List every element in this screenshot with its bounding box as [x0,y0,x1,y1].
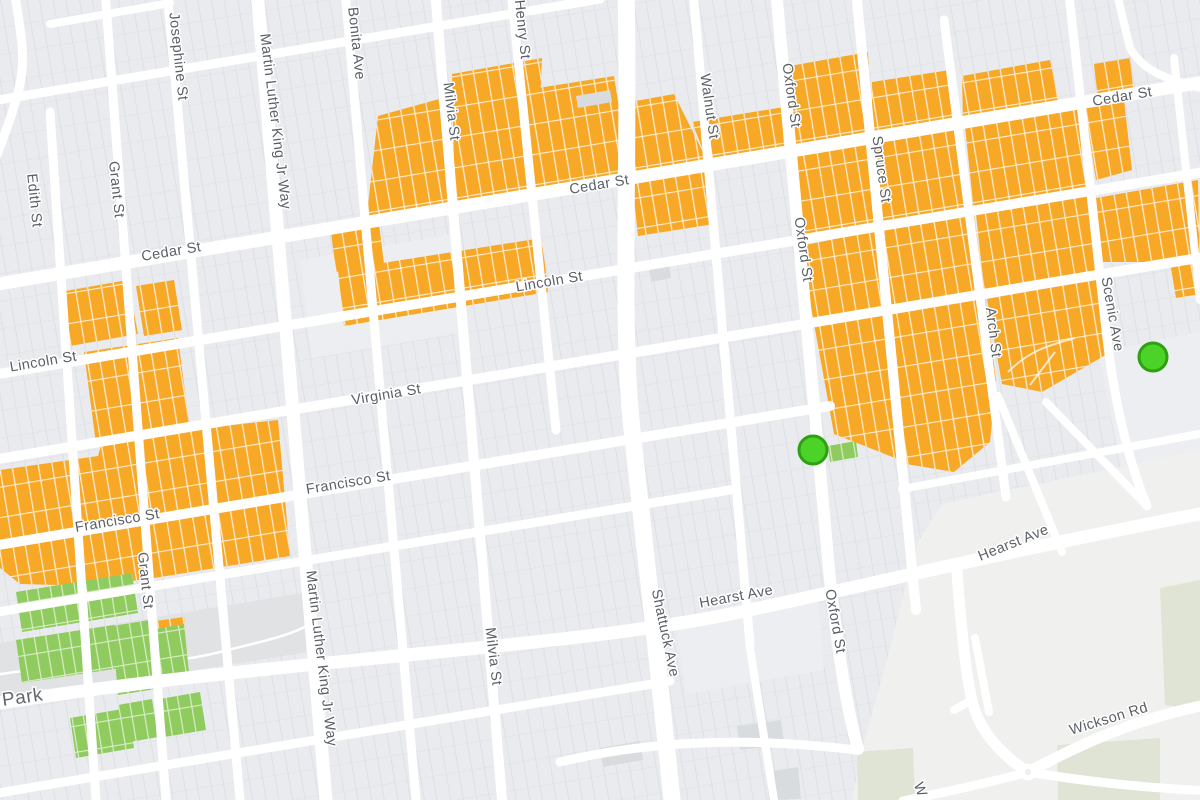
map-viewport[interactable]: Josephine StMartin Luther King Jr WayMar… [0,0,1200,800]
campus-green [857,748,915,800]
campus-green [1160,580,1200,710]
roundabout-island [1025,769,1031,775]
map-canvas[interactable]: Josephine StMartin Luther King Jr WayMar… [0,0,1200,800]
highlighted-parcels-orange [136,280,182,336]
highlighted-parcels-green [160,692,206,737]
highlighted-parcels-green [118,699,158,743]
green-circle-marker[interactable] [799,436,827,464]
green-circle-marker[interactable] [1139,343,1167,371]
